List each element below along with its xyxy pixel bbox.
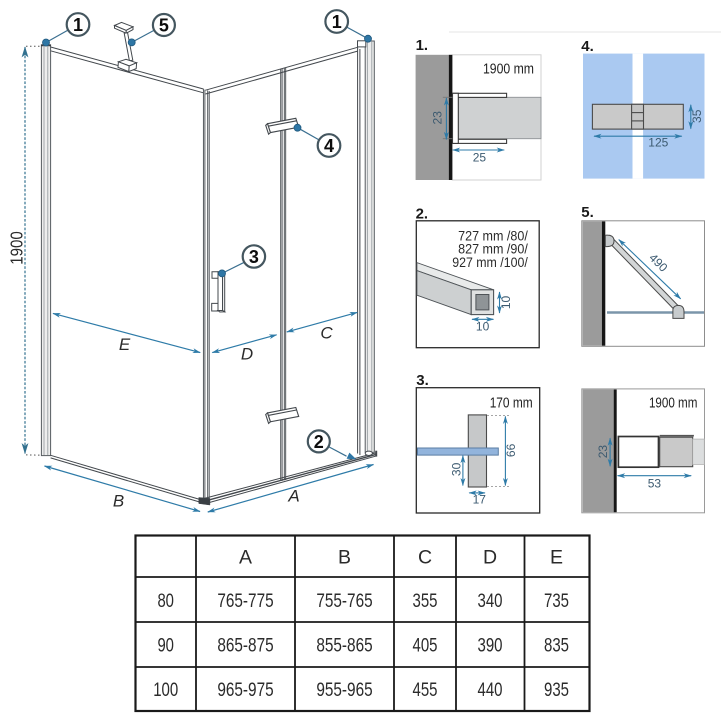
- svg-text:A: A: [287, 487, 299, 506]
- svg-text:C: C: [320, 324, 333, 343]
- svg-text:2: 2: [314, 432, 324, 452]
- svg-text:E: E: [119, 335, 131, 354]
- svg-text:D: D: [483, 547, 497, 569]
- svg-text:25: 25: [473, 150, 487, 164]
- svg-text:927 mm /100/: 927 mm /100/: [452, 255, 528, 270]
- svg-text:90: 90: [157, 635, 174, 657]
- svg-text:865-875: 865-875: [217, 635, 273, 657]
- svg-text:100: 100: [153, 679, 178, 701]
- svg-text:855-865: 855-865: [316, 635, 372, 657]
- svg-text:30: 30: [449, 462, 463, 476]
- svg-text:765-775: 765-775: [217, 590, 273, 612]
- svg-text:4: 4: [324, 136, 334, 156]
- svg-text:B: B: [338, 547, 351, 569]
- svg-text:955-965: 955-965: [316, 679, 372, 701]
- svg-text:170 mm: 170 mm: [490, 396, 533, 412]
- svg-text:1: 1: [73, 15, 83, 35]
- svg-text:23: 23: [431, 111, 445, 125]
- svg-text:2.: 2.: [416, 206, 429, 223]
- svg-text:A: A: [239, 547, 252, 569]
- svg-text:735: 735: [544, 590, 569, 612]
- svg-text:4.: 4.: [581, 38, 594, 55]
- svg-text:3: 3: [249, 247, 259, 267]
- svg-text:17: 17: [473, 493, 487, 507]
- svg-text:53: 53: [648, 476, 662, 490]
- svg-text:35: 35: [690, 109, 704, 123]
- svg-text:10: 10: [499, 296, 513, 310]
- svg-text:835: 835: [544, 635, 569, 657]
- svg-text:355: 355: [413, 590, 438, 612]
- svg-text:455: 455: [413, 679, 438, 701]
- svg-text:66: 66: [504, 443, 518, 457]
- svg-text:1.: 1.: [416, 37, 429, 54]
- svg-text:935: 935: [544, 679, 569, 701]
- svg-text:C: C: [418, 547, 432, 569]
- svg-text:5.: 5.: [581, 204, 594, 221]
- svg-text:E: E: [550, 547, 563, 569]
- svg-text:23: 23: [596, 445, 610, 459]
- svg-text:3.: 3.: [416, 372, 429, 389]
- svg-text:405: 405: [413, 635, 438, 657]
- svg-text:965-975: 965-975: [217, 679, 273, 701]
- svg-text:5: 5: [159, 16, 169, 36]
- svg-text:440: 440: [478, 679, 503, 701]
- svg-text:D: D: [241, 345, 253, 364]
- svg-text:755-765: 755-765: [316, 590, 372, 612]
- svg-text:1900 mm: 1900 mm: [649, 396, 698, 412]
- svg-text:10: 10: [476, 319, 490, 333]
- svg-text:1900: 1900: [7, 231, 27, 265]
- svg-text:1: 1: [332, 12, 342, 32]
- svg-text:390: 390: [478, 635, 503, 657]
- svg-text:80: 80: [157, 590, 174, 612]
- svg-text:125: 125: [648, 136, 668, 150]
- svg-text:B: B: [113, 492, 124, 511]
- svg-text:340: 340: [478, 590, 503, 612]
- svg-text:1900 mm: 1900 mm: [483, 62, 534, 78]
